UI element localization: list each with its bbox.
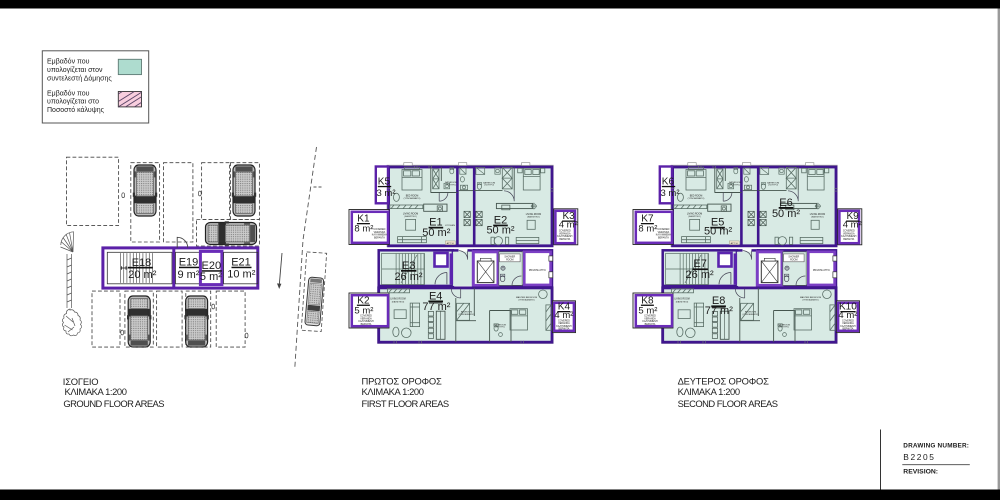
svg-text:ΒΕΡΑΝΤΑ: ΒΕΡΑΝΤΑ bbox=[374, 236, 385, 239]
svg-text:5 m²: 5 m² bbox=[200, 271, 222, 283]
svg-text:υπολογίζεται στον: υπολογίζεται στον bbox=[47, 66, 103, 74]
svg-text:(ΛΟΥΤΡΟ): (ΛΟΥΤΡΟ) bbox=[446, 185, 456, 187]
svg-text:50 m²: 50 m² bbox=[704, 226, 732, 238]
svg-text:ΒΕΡΑΝΤΑ: ΒΕΡΑΝΤΑ bbox=[361, 323, 372, 326]
svg-text:50 m²: 50 m² bbox=[486, 225, 514, 237]
svg-text:ΠΡΩΤΟΣ ΟΡΟΦΟΣ: ΠΡΩΤΟΣ ΟΡΟΦΟΣ bbox=[362, 375, 442, 386]
svg-text:(ΛΟΥΤΡΟ): (ΛΟΥΤΡΟ) bbox=[495, 327, 505, 329]
svg-text:(ΛΟΥΤΡΟ): (ΛΟΥΤΡΟ) bbox=[484, 185, 494, 187]
svg-text:4 m²: 4 m² bbox=[554, 310, 573, 321]
svg-text:ΒΕΡΑΝΤΑ: ΒΕΡΑΝΤΑ bbox=[558, 328, 569, 331]
svg-text:8 m²: 8 m² bbox=[354, 224, 373, 235]
svg-text:APT 10: APT 10 bbox=[447, 242, 455, 245]
svg-text:REVISION:: REVISION: bbox=[903, 469, 938, 476]
svg-text:50 m²: 50 m² bbox=[772, 208, 800, 220]
svg-text:Ποσοστό κάλυψης: Ποσοστό κάλυψης bbox=[47, 106, 105, 114]
svg-text:ΚΛΙΜΑΚΑ 1:200: ΚΛΙΜΑΚΑ 1:200 bbox=[65, 386, 127, 397]
svg-text:SECOND FLOOR AREAS: SECOND FLOOR AREAS bbox=[678, 398, 778, 409]
svg-text:B2205: B2205 bbox=[903, 452, 935, 462]
svg-text:PRIVATE ATTIC: PRIVATE ATTIC bbox=[529, 269, 546, 272]
svg-text:GROUND FLOOR AREAS: GROUND FLOOR AREAS bbox=[63, 398, 164, 409]
svg-text:77 m²: 77 m² bbox=[705, 305, 733, 317]
svg-text:FIRST FLOOR AREAS: FIRST FLOOR AREAS bbox=[362, 398, 449, 409]
svg-text:ΚΛΙΜΑΚΑ 1:200: ΚΛΙΜΑΚΑ 1:200 bbox=[362, 386, 424, 397]
svg-text:(ΥΠΝΟΔΩΜΑΤΙΟ): (ΥΠΝΟΔΩΜΑΤΙΟ) bbox=[518, 299, 534, 302]
svg-text:50 m²: 50 m² bbox=[422, 227, 450, 239]
svg-text:4 m²: 4 m² bbox=[843, 220, 862, 231]
svg-text:77 m²: 77 m² bbox=[422, 301, 450, 313]
svg-text:Εμβαδόν που: Εμβαδόν που bbox=[47, 58, 90, 66]
svg-text:ROOM: ROOM bbox=[506, 259, 513, 262]
svg-text:(ΚΑΘΙΣΤΙΚΟ): (ΚΑΘΙΣΤΙΚΟ) bbox=[527, 215, 540, 218]
svg-text:KITCHEN: KITCHEN bbox=[445, 225, 455, 227]
svg-text:υπολογίζεται στο: υπολογίζεται στο bbox=[47, 98, 99, 106]
svg-text:DRAWING NUMBER:: DRAWING NUMBER: bbox=[903, 443, 969, 450]
svg-text:(ΚΑΘΙΣΤΙΚΟ): (ΚΑΘΙΣΤΙΚΟ) bbox=[392, 300, 405, 303]
svg-text:3 m²: 3 m² bbox=[377, 188, 396, 199]
svg-text:ΚΛΙΜΑΚΑ 1:200: ΚΛΙΜΑΚΑ 1:200 bbox=[678, 386, 740, 397]
svg-text:ΔΕΥΤΕΡΟΣ ΟΡΟΦΟΣ: ΔΕΥΤΕΡΟΣ ΟΡΟΦΟΣ bbox=[678, 375, 770, 386]
svg-text:5 m²: 5 m² bbox=[638, 306, 657, 317]
svg-text:5 m²: 5 m² bbox=[354, 306, 373, 317]
svg-text:20 m²: 20 m² bbox=[128, 269, 156, 281]
svg-text:26 m²: 26 m² bbox=[686, 269, 714, 281]
svg-text:ΒΕΡΑΝΤΑ: ΒΕΡΑΝΤΑ bbox=[559, 238, 570, 241]
svg-text:4 m²: 4 m² bbox=[838, 310, 857, 321]
svg-text:9 m²: 9 m² bbox=[178, 269, 200, 281]
svg-text:(ΥΠΝΟΔΩΜΑΤΙΟ): (ΥΠΝΟΔΩΜΑΤΙΟ) bbox=[458, 313, 474, 316]
svg-text:8 m²: 8 m² bbox=[638, 224, 657, 235]
svg-text:26 m²: 26 m² bbox=[394, 271, 422, 283]
svg-text:4 m²: 4 m² bbox=[559, 220, 578, 231]
svg-text:3 m²: 3 m² bbox=[661, 188, 680, 199]
svg-text:(ΚΑΘΙΣΤΙΚΟ): (ΚΑΘΙΣΤΙΚΟ) bbox=[404, 215, 417, 218]
svg-text:Εμβαδόν που: Εμβαδόν που bbox=[47, 89, 90, 97]
svg-text:συντελεστή Δόμησης: συντελεστή Δόμησης bbox=[47, 74, 112, 82]
svg-text:(ΥΠΝΟΔΩΜΑΤΙΟ): (ΥΠΝΟΔΩΜΑΤΙΟ) bbox=[404, 197, 421, 200]
svg-text:10 m²: 10 m² bbox=[227, 268, 255, 280]
